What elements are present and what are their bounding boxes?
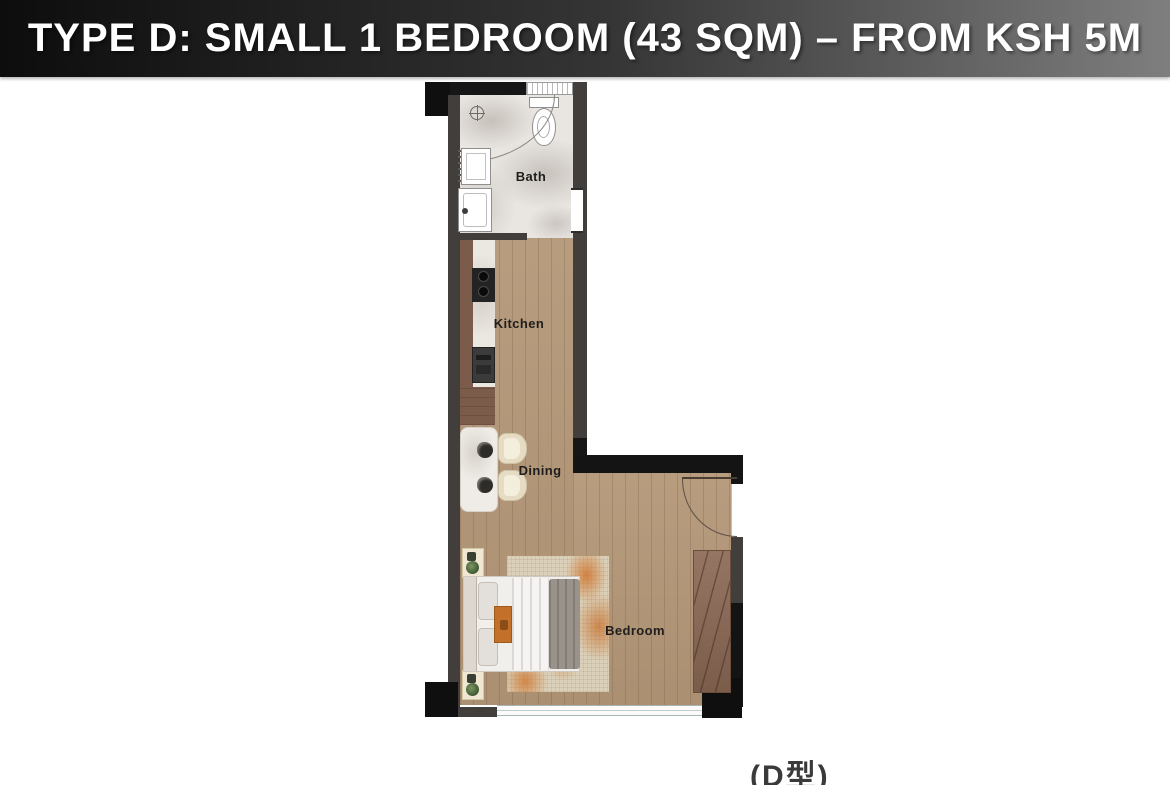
- page-title: TYPE D: SMALL 1 BEDROOM (43 SQM) – FROM …: [28, 16, 1142, 61]
- table-plant-icon: [477, 442, 493, 458]
- column-bottom-left: [425, 682, 458, 717]
- bedroom-window-icon: [497, 705, 702, 716]
- table-plant-icon: [477, 477, 493, 493]
- bath-side-opening: [571, 188, 583, 233]
- kitchen-counter-lower: [460, 387, 495, 425]
- bed-throw-icon: [494, 606, 512, 643]
- washing-machine-icon: [458, 188, 492, 232]
- room-label-dining: Dining: [505, 463, 575, 478]
- bath-sink-icon: [461, 148, 491, 185]
- oven-icon: [472, 347, 495, 383]
- bed-headboard: [464, 577, 477, 671]
- dining-table-icon: [460, 427, 498, 512]
- wall-entry-top: [575, 455, 743, 473]
- bed-icon: [463, 576, 580, 672]
- title-banner: TYPE D: SMALL 1 BEDROOM (43 SQM) – FROM …: [0, 0, 1170, 77]
- room-label-bath: Bath: [496, 169, 566, 184]
- bed-duvet: [512, 578, 549, 670]
- floor-plan: Bath Kitchen Dining Bedroom: [425, 82, 745, 719]
- nightstand-icon: [462, 670, 484, 700]
- unit-type-label: (D型): [750, 751, 830, 785]
- bath-window-icon: [526, 82, 573, 95]
- dining-chair-icon: [498, 433, 527, 464]
- wall-right-upper: [573, 82, 587, 473]
- bed-blanket: [549, 579, 580, 669]
- wardrobe-icon: [693, 550, 731, 693]
- room-label-bedroom: Bedroom: [600, 623, 670, 638]
- wall-bath-kitchen-divider: [460, 233, 527, 240]
- wall-stub-bottom-left: [458, 707, 497, 717]
- stove-icon: [472, 268, 495, 302]
- room-label-kitchen: Kitchen: [484, 316, 554, 331]
- wall-right-mid: [731, 537, 743, 603]
- nightstand-icon: [462, 548, 484, 578]
- page: TYPE D: SMALL 1 BEDROOM (43 SQM) – FROM …: [0, 0, 1170, 785]
